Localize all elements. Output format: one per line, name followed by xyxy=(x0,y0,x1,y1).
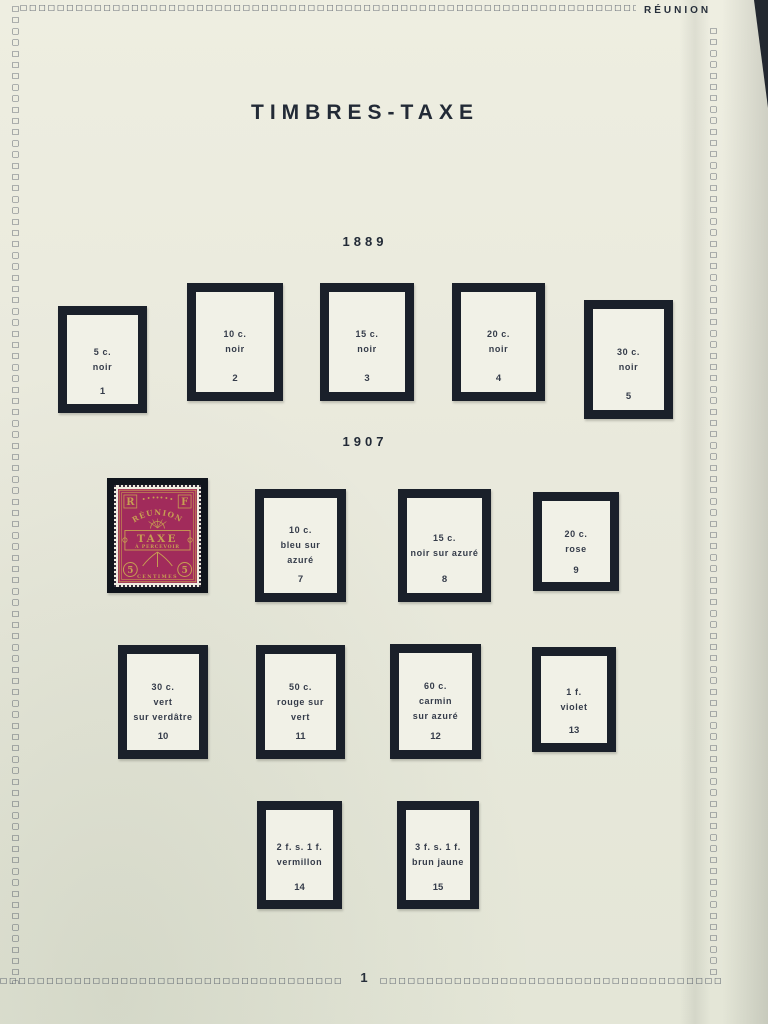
stamp-box-3: 15 c. noir 3 xyxy=(320,283,414,401)
year-heading-1907: 1907 xyxy=(0,434,730,449)
stamp-box-label: 15 c. noir sur azuré xyxy=(409,523,480,569)
stamp-box-label: 10 c. noir xyxy=(198,318,272,366)
stamp-box-inner: 30 c. noir 5 xyxy=(593,309,664,410)
stamp-box-inner: 60 c. carmin sur azuré 12 xyxy=(399,653,472,750)
stamp-value: 15 c. xyxy=(409,531,480,546)
stamp-number: 1 xyxy=(67,386,138,397)
stamp-value: 2 f. s. 1 f. xyxy=(268,840,331,855)
stamp-box-inner: 10 c. bleu sur azuré 7 xyxy=(264,498,337,593)
stamp-box-2: 10 c. noir 2 xyxy=(187,283,283,401)
stamp-value: 5 c. xyxy=(69,345,136,360)
stamp-number: 11 xyxy=(265,731,336,742)
stamp-box-8: 15 c. noir sur azuré 8 xyxy=(398,489,491,602)
stamp-color: noir xyxy=(69,360,136,375)
stamp-value: 1 f. xyxy=(543,685,605,700)
stamp-box-5: 30 c. noir 5 xyxy=(584,300,673,419)
stamp-box-inner: 5 c. noir 1 xyxy=(67,315,138,404)
stamp-word-percevoir: À PERCEVOIR xyxy=(134,543,180,550)
stamp-box-inner: 15 c. noir sur azuré 8 xyxy=(407,498,482,593)
stamp-value: 30 c. xyxy=(595,345,662,360)
stamp-box-4: 20 c. noir 4 xyxy=(452,283,545,401)
stamp-unit: CENTIMES xyxy=(137,573,178,579)
stamp-number: 15 xyxy=(406,882,470,893)
stamp-box-12: 60 c. carmin sur azuré 12 xyxy=(390,644,481,759)
stamp-number: 2 xyxy=(196,373,274,384)
photo-background-corner xyxy=(748,0,768,108)
stamp-color: rouge sur vert xyxy=(267,695,334,725)
stamp-word-taxe: TAXE xyxy=(137,532,178,544)
stamp-box-inner: 2 f. s. 1 f. vermillon 14 xyxy=(266,810,333,900)
stamp-box-6: R F RÉUNION TAXE xyxy=(107,478,208,593)
stamp-letter-left: R xyxy=(126,496,135,507)
stamp-value: 30 c. xyxy=(129,680,197,695)
stamp-box-label: 15 c. noir xyxy=(331,318,403,366)
stamp-letter-right: F xyxy=(181,496,188,507)
border-chain-top: □□□□□□□□□□□□□□□□□□□□□□□□□□□□□□□□□□□□□□□□… xyxy=(20,4,636,13)
stamp-number: 4 xyxy=(461,373,536,384)
stamp-color: noir xyxy=(595,360,662,375)
stamp-color: carmin sur azuré xyxy=(401,694,470,724)
stamp-value-left: 5 xyxy=(127,565,133,575)
stamp-color: bleu sur azuré xyxy=(266,538,335,568)
stamp-box-13: 1 f. violet 13 xyxy=(532,647,616,752)
stamp-box-inner: 20 c. rose 9 xyxy=(542,501,610,582)
stamp-value: 20 c. xyxy=(544,527,608,542)
stamp-number: 3 xyxy=(329,373,405,384)
stamp-box-9: 20 c. rose 9 xyxy=(533,492,619,591)
page-number: 1 xyxy=(340,970,388,985)
stamp-number: 5 xyxy=(593,391,664,402)
stamp-box-label: 10 c. bleu sur azuré xyxy=(266,523,335,569)
album-page: □□□□□□□□□□□□□□□□□□□□□□□□□□□□□□□□□□□□□□□□… xyxy=(0,0,768,1024)
stamp-box-11: 50 c. rouge sur vert 11 xyxy=(256,645,345,759)
stamp-box-inner: 3 f. s. 1 f. brun jaune 15 xyxy=(406,810,470,900)
stamp-box-label: 30 c. vert sur verdâtre xyxy=(129,679,197,725)
stamp-color: violet xyxy=(543,700,605,715)
stamp-color: vermillon xyxy=(268,855,331,870)
page-title: TIMBRES-TAXE xyxy=(0,101,730,125)
stamp-color: noir sur azuré xyxy=(409,546,480,561)
stamp-box-label: 20 c. rose xyxy=(544,522,608,561)
stamp-box-inner: 50 c. rouge sur vert 11 xyxy=(265,654,336,750)
stamp-box-label: 3 f. s. 1 f. brun jaune xyxy=(408,833,468,876)
border-chain-bottom-left: □□□□□□□□□□□□□□□□□□□□□□□□□□□□□□□□□□□□□□□□… xyxy=(0,977,344,986)
stamp-color: vert sur verdâtre xyxy=(129,695,197,725)
stamp-box-14: 2 f. s. 1 f. vermillon 14 xyxy=(257,801,342,909)
stamp-box-inner: 20 c. noir 4 xyxy=(461,292,536,392)
stamp-number: 14 xyxy=(266,882,333,893)
border-chain-left: □□□□□□□□□□□□□□□□□□□□□□□□□□□□□□□□□□□□□□□□… xyxy=(10,4,19,984)
stamp-box-label: 20 c. noir xyxy=(463,318,534,366)
region-label: RÉUNION xyxy=(644,5,734,16)
stamp-box-label: 2 f. s. 1 f. vermillon xyxy=(268,833,331,876)
stamp-value: 50 c. xyxy=(267,680,334,695)
stamp-box-label: 30 c. noir xyxy=(595,335,662,384)
stamp-value: 10 c. xyxy=(266,523,335,538)
stamp-color: brun jaune xyxy=(408,855,468,870)
stamp-number: 10 xyxy=(127,731,199,742)
stamp-box-label: 60 c. carmin sur azuré xyxy=(401,678,470,725)
year-heading-1889: 1889 xyxy=(0,234,730,249)
stamp-design: R F RÉUNION TAXE xyxy=(118,489,197,583)
border-chain-right: □□□□□□□□□□□□□□□□□□□□□□□□□□□□□□□□□□□□□□□□… xyxy=(708,26,717,980)
stamp-box-1: 5 c. noir 1 xyxy=(58,306,147,413)
stamp-number: 12 xyxy=(399,731,472,742)
stamp-color: noir xyxy=(331,342,403,357)
stamp-number: 7 xyxy=(264,574,337,585)
border-chain-bottom-right: □□□□□□□□□□□□□□□□□□□□□□□□□□□□□□□□□□□□□□□□… xyxy=(380,977,724,986)
stamp-color: noir xyxy=(198,342,272,357)
stamp-box-inner: 30 c. vert sur verdâtre 10 xyxy=(127,654,199,750)
stamp-reunion-taxe-5c: R F RÉUNION TAXE xyxy=(114,485,201,587)
stamp-box-10: 30 c. vert sur verdâtre 10 xyxy=(118,645,208,759)
stamp-value: 3 f. s. 1 f. xyxy=(408,840,468,855)
stamp-value: 60 c. xyxy=(401,679,470,694)
stamp-box-label: 5 c. noir xyxy=(69,338,136,381)
stamp-box-inner: 15 c. noir 3 xyxy=(329,292,405,392)
stamp-value-right: 5 xyxy=(182,565,188,575)
stamp-value: 10 c. xyxy=(198,327,272,342)
stamp-number: 9 xyxy=(542,565,610,576)
stamp-number: 13 xyxy=(541,725,607,736)
stamp-color: rose xyxy=(544,542,608,557)
stamp-number: 8 xyxy=(407,574,482,585)
stamp-color: noir xyxy=(463,342,534,357)
stamp-box-inner: 10 c. noir 2 xyxy=(196,292,274,392)
stamp-box-label: 50 c. rouge sur vert xyxy=(267,679,334,725)
stamp-box-7: 10 c. bleu sur azuré 7 xyxy=(255,489,346,602)
stamp-box-label: 1 f. violet xyxy=(543,679,605,721)
stamp-value: 15 c. xyxy=(331,327,403,342)
stamp-value: 20 c. xyxy=(463,327,534,342)
stamp-box-inner: 1 f. violet 13 xyxy=(541,656,607,743)
stamp-box-15: 3 f. s. 1 f. brun jaune 15 xyxy=(397,801,479,909)
